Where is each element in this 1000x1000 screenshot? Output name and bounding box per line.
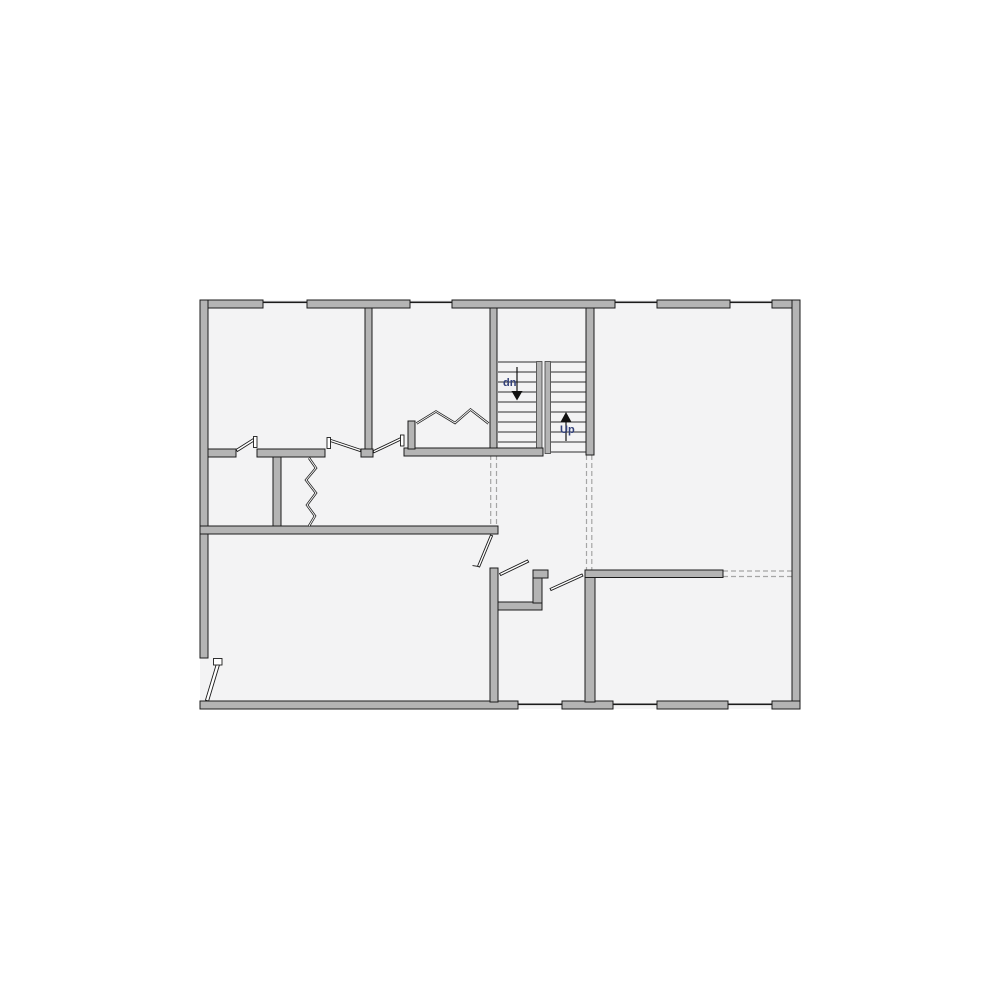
window <box>410 302 452 304</box>
window <box>263 302 307 304</box>
floor-area <box>200 300 800 709</box>
window <box>518 704 562 706</box>
window <box>728 704 772 706</box>
floor-plan: dn Up <box>0 0 1000 1000</box>
door-hinge <box>401 435 405 446</box>
door-hinge <box>327 438 331 449</box>
door-frame <box>214 659 223 666</box>
stair-rail <box>537 362 543 454</box>
window <box>730 302 772 304</box>
floor-plan-canvas: dn Up <box>0 0 1000 1000</box>
window <box>613 704 657 706</box>
stair-rail <box>545 362 551 454</box>
door-hinge <box>254 437 258 448</box>
stairs-up-label: Up <box>560 424 575 436</box>
window <box>615 302 657 304</box>
stairs-down-label: dn <box>503 377 517 389</box>
